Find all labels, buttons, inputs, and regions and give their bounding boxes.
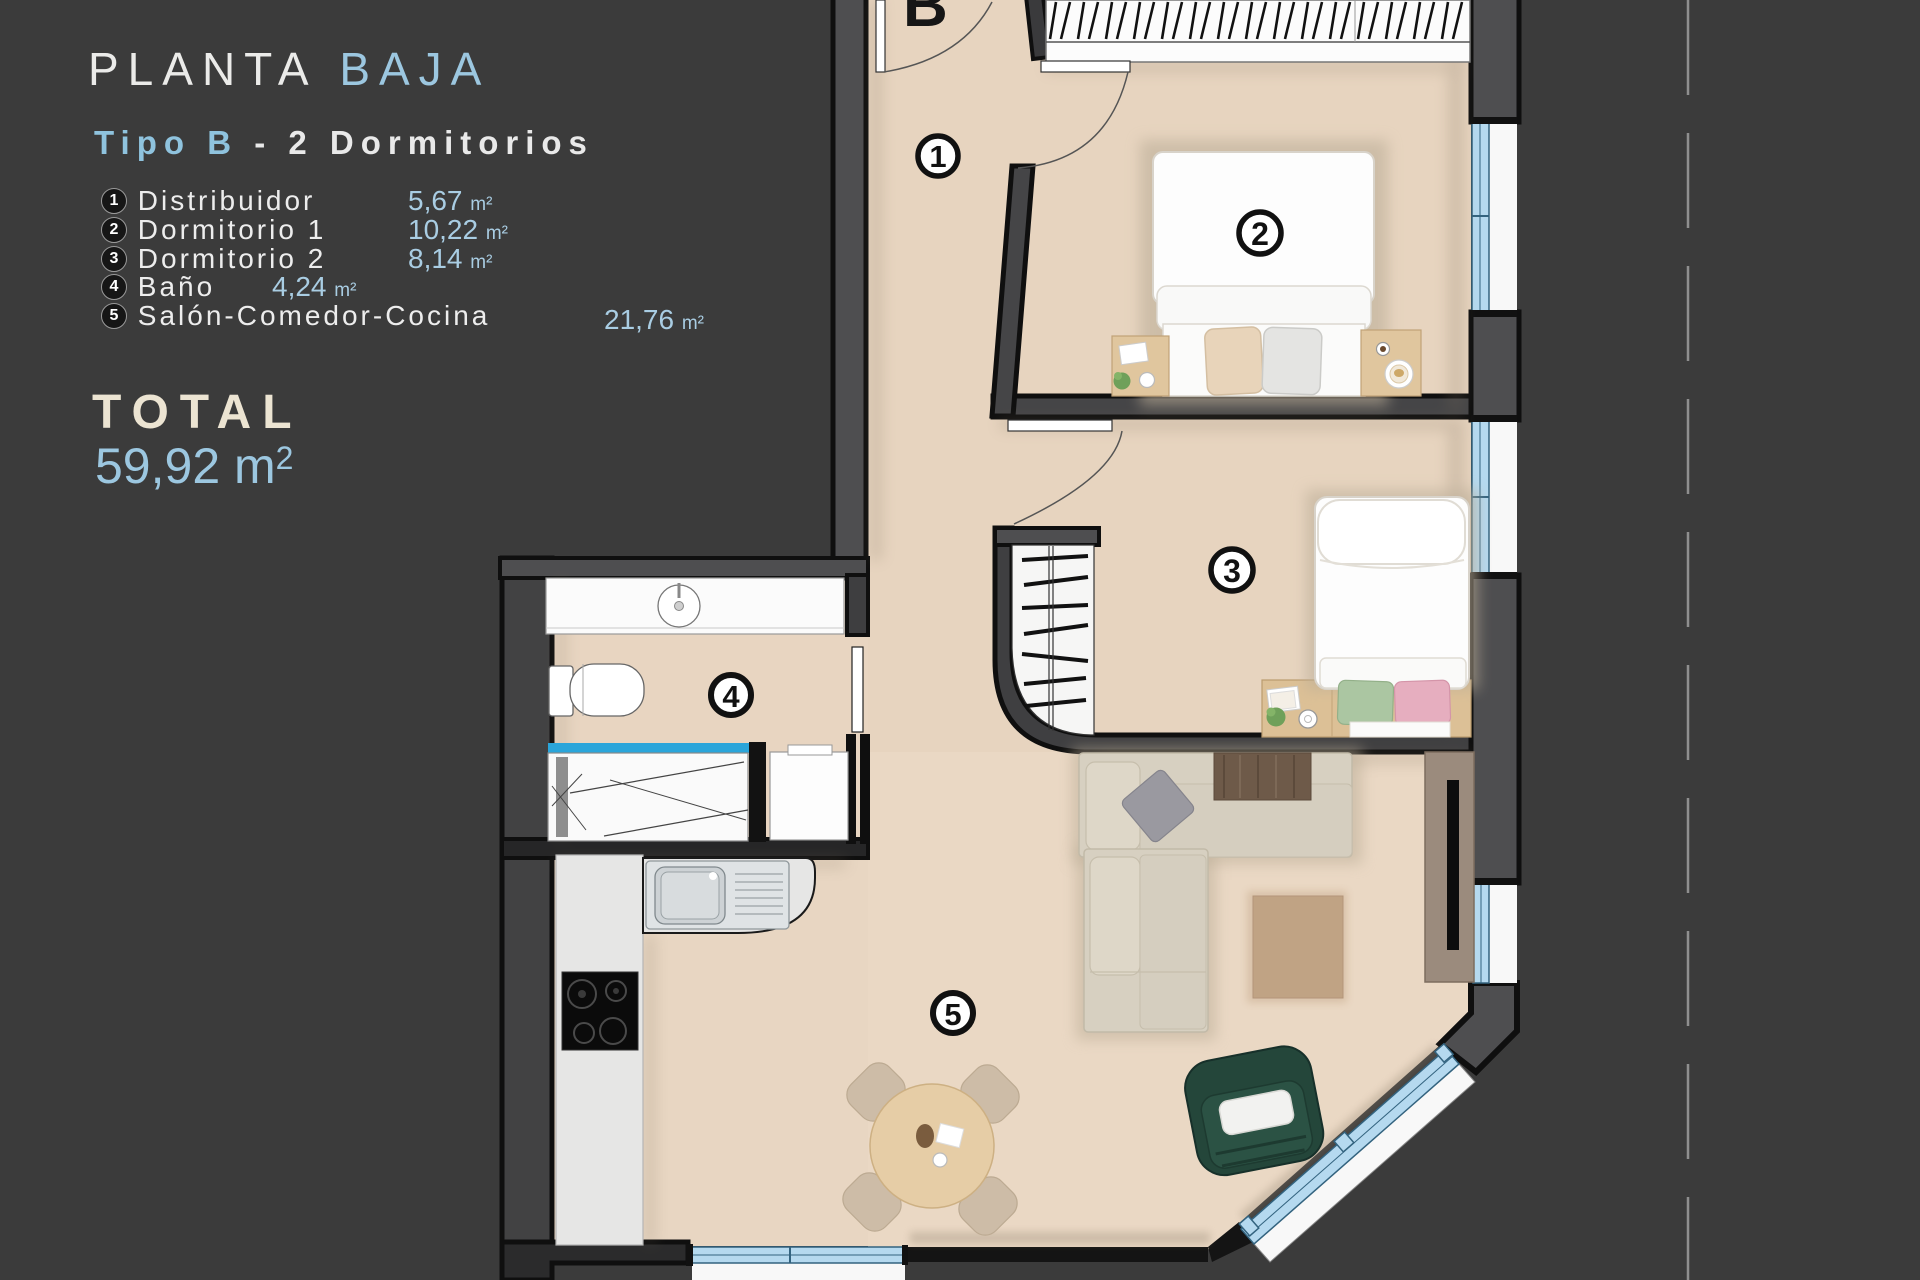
svg-text:1: 1: [929, 139, 946, 174]
svg-text:5: 5: [944, 997, 961, 1032]
svg-text:B: B: [903, 0, 948, 40]
svg-text:3: 3: [1223, 553, 1241, 589]
svg-text:4: 4: [722, 679, 740, 714]
svg-text:2: 2: [1251, 216, 1269, 252]
